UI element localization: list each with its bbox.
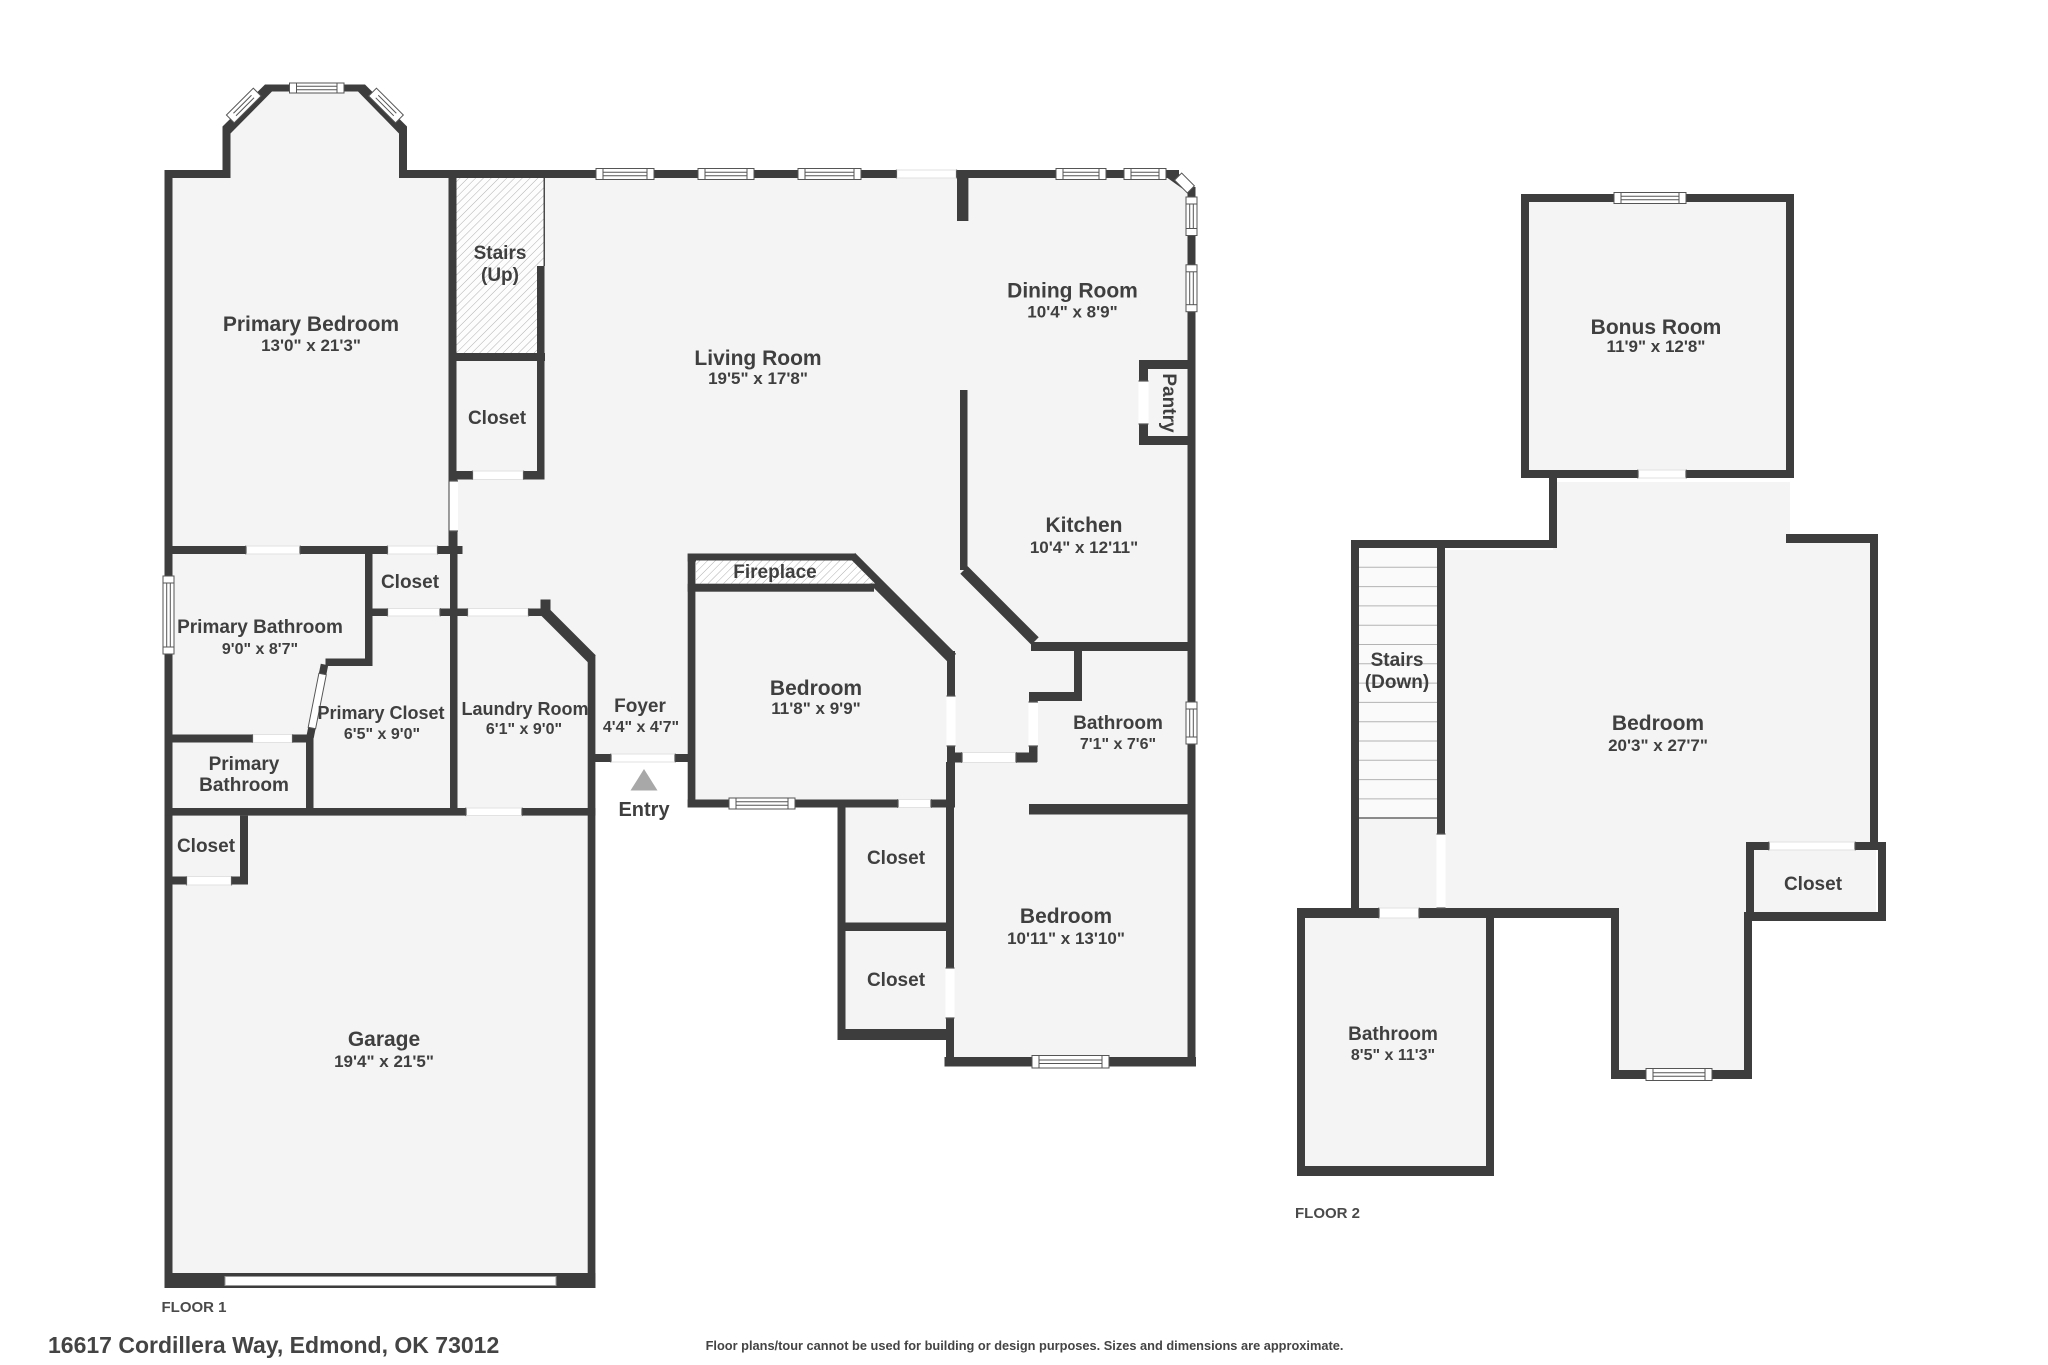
svg-text:Floor plans/tour cannot be use: Floor plans/tour cannot be used for buil… xyxy=(706,1338,1344,1353)
svg-text:Fireplace: Fireplace xyxy=(733,562,816,583)
svg-text:Garage: Garage xyxy=(348,1028,420,1051)
svg-text:16617 Cordillera Way, Edmond,: 16617 Cordillera Way, Edmond, OK 73012 xyxy=(48,1332,499,1358)
svg-text:FLOOR 1: FLOOR 1 xyxy=(162,1299,227,1316)
svg-text:Closet: Closet xyxy=(1784,874,1843,895)
svg-text:Primary Closet: Primary Closet xyxy=(317,703,444,723)
svg-text:Kitchen: Kitchen xyxy=(1045,514,1122,537)
svg-text:Bathroom: Bathroom xyxy=(199,775,289,796)
svg-text:Bathroom: Bathroom xyxy=(1073,713,1163,734)
svg-text:9'0" x 8'7": 9'0" x 8'7" xyxy=(222,641,298,658)
svg-text:Pantry: Pantry xyxy=(1158,373,1179,433)
svg-text:11'9" x 12'8": 11'9" x 12'8" xyxy=(1607,337,1706,356)
svg-text:Stairs: Stairs xyxy=(1371,650,1424,671)
svg-text:11'8" x 9'9": 11'8" x 9'9" xyxy=(771,699,860,718)
svg-text:13'0" x 21'3": 13'0" x 21'3" xyxy=(261,336,361,355)
svg-text:8'5" x 11'3": 8'5" x 11'3" xyxy=(1351,1047,1435,1064)
svg-text:Laundry Room: Laundry Room xyxy=(461,699,588,719)
svg-text:Bedroom: Bedroom xyxy=(1612,712,1704,735)
svg-text:Dining Room: Dining Room xyxy=(1007,280,1138,303)
svg-text:10'11" x 13'10": 10'11" x 13'10" xyxy=(1007,929,1125,948)
svg-text:Bedroom: Bedroom xyxy=(1020,905,1112,928)
svg-text:6'5" x 9'0": 6'5" x 9'0" xyxy=(344,726,420,743)
svg-text:Closet: Closet xyxy=(867,970,926,991)
svg-text:10'4" x 12'11": 10'4" x 12'11" xyxy=(1030,538,1138,557)
svg-text:Living Room: Living Room xyxy=(694,347,821,370)
svg-text:FLOOR 2: FLOOR 2 xyxy=(1295,1205,1360,1222)
svg-text:Bathroom: Bathroom xyxy=(1348,1024,1438,1045)
svg-text:Closet: Closet xyxy=(177,836,236,857)
svg-text:20'3" x 27'7": 20'3" x 27'7" xyxy=(1608,736,1708,755)
svg-text:Primary Bathroom: Primary Bathroom xyxy=(177,617,343,638)
svg-text:Bedroom: Bedroom xyxy=(770,677,862,700)
svg-text:Primary: Primary xyxy=(209,754,280,775)
svg-text:Stairs: Stairs xyxy=(474,243,527,264)
svg-text:10'4" x 8'9": 10'4" x 8'9" xyxy=(1027,303,1117,322)
svg-text:Closet: Closet xyxy=(867,848,926,869)
svg-text:Closet: Closet xyxy=(468,408,527,429)
svg-text:4'4" x 4'7": 4'4" x 4'7" xyxy=(603,719,679,736)
svg-text:Bonus Room: Bonus Room xyxy=(1591,316,1722,339)
svg-text:19'4" x 21'5": 19'4" x 21'5" xyxy=(334,1052,434,1071)
svg-text:(Down): (Down) xyxy=(1365,672,1429,693)
svg-text:(Up): (Up) xyxy=(481,265,519,286)
svg-text:Primary Bedroom: Primary Bedroom xyxy=(223,313,399,336)
svg-text:19'5" x 17'8": 19'5" x 17'8" xyxy=(708,369,808,388)
svg-text:7'1" x 7'6": 7'1" x 7'6" xyxy=(1080,736,1156,753)
svg-text:6'1" x 9'0": 6'1" x 9'0" xyxy=(486,721,562,738)
svg-text:Foyer: Foyer xyxy=(614,696,666,717)
svg-text:Entry: Entry xyxy=(618,799,670,821)
svg-text:Closet: Closet xyxy=(381,572,440,593)
